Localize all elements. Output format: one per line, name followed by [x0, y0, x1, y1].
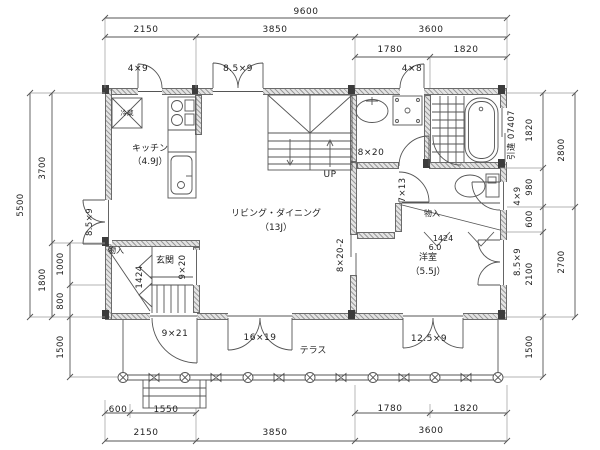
door-arc — [433, 137, 461, 165]
dim-bottom-2150: 2150 — [121, 428, 171, 438]
door-arc — [399, 136, 429, 166]
dim-top-3600: 3600 — [406, 25, 456, 35]
dim-bottom-1820: 1820 — [444, 404, 488, 414]
dim-right-2100: 2100 — [525, 252, 537, 296]
label-toilet-door: 7×13 — [398, 168, 410, 212]
dim-left-1800: 1800 — [38, 258, 50, 302]
dim-bottom-1550: 1550 — [141, 405, 191, 415]
room-bedroom-name: 洋室 — [398, 250, 458, 263]
room-entrance-name: 玄関 — [137, 253, 193, 266]
stairs-down-arrow-icon — [287, 139, 293, 165]
room-living-name: リビング・ダイニング — [213, 206, 339, 219]
label-right-door: 4×9 — [513, 174, 525, 218]
dim-right-2700: 2700 — [557, 240, 569, 284]
stairs-up-label: UP — [318, 170, 342, 180]
label-closet-front: 1424 — [420, 234, 466, 243]
label-top-kitchen-door: 4×9 — [118, 64, 158, 74]
stove-burner-icon — [172, 101, 183, 112]
room-bedroom-size: （5.5J） — [393, 264, 463, 277]
dim-bottom-600: 600 — [104, 405, 132, 415]
label-entrance-hall-door: 9×20 — [178, 245, 190, 289]
room-kitchen-name: キッチン — [112, 141, 188, 154]
door-arc — [152, 318, 197, 363]
dim-right-600: 600 — [525, 197, 537, 241]
stairs — [268, 95, 352, 170]
room-terrace-name: テラス — [283, 343, 343, 356]
dim-bottom-1780: 1780 — [368, 404, 412, 414]
stove-burner-icon — [172, 115, 183, 126]
room-kitchen-size: （4.9J） — [112, 154, 188, 167]
stairs-up-arrow-icon — [327, 140, 333, 167]
dim-left-1500: 1500 — [56, 325, 68, 369]
dim-top-2150: 2150 — [121, 25, 171, 35]
dim-left-800: 800 — [56, 279, 68, 323]
dim-right-2800: 2800 — [557, 128, 569, 172]
washing-machine — [393, 96, 422, 125]
dim-right-1500: 1500 — [525, 325, 537, 369]
label-entrance-door: 9×21 — [147, 329, 203, 339]
label-right-sliding: 引違 07407 — [505, 100, 517, 170]
label-right-double-door: 8.5×9 — [513, 240, 525, 284]
label-top-utility-door: 4×8 — [392, 64, 432, 74]
label-bedroom-terrace-door: 12.5×9 — [398, 334, 460, 344]
closet-bedroom-label: 物入 — [412, 208, 452, 219]
floor-plan: 9600 2150 3850 3600 1780 1820 4×9 8.5×9 … — [0, 0, 600, 450]
dim-top-overall: 9600 — [278, 7, 334, 17]
toilet-bowl — [455, 175, 485, 197]
label-top-double-door: 8.5×9 — [213, 64, 263, 74]
dim-top-3850: 3850 — [250, 25, 300, 35]
dim-bottom-3850: 3850 — [250, 428, 300, 438]
dim-left-3700: 3700 — [38, 146, 50, 190]
label-living-hall-sliding: 8×20-2 — [336, 227, 348, 283]
bath-tile-grid — [432, 96, 464, 162]
dim-bottom-3600: 3600 — [406, 426, 456, 436]
dim-left-5500: 5500 — [16, 183, 28, 227]
dim-top-1780: 1780 — [368, 45, 412, 55]
fridge-label: 冷蔵 — [115, 107, 139, 117]
dim-right-1820: 1820 — [525, 108, 537, 152]
dim-top-1820: 1820 — [444, 45, 488, 55]
closet-entrance-label: 物入 — [96, 245, 136, 256]
label-stair-hall-window: 8×20 — [346, 148, 396, 158]
label-left-double-door: 8.5×9 — [85, 200, 97, 244]
porch-steps — [143, 380, 206, 408]
room-living-size: （13J） — [213, 220, 339, 233]
door-arc — [478, 240, 500, 285]
label-living-terrace-door: 16×19 — [230, 333, 290, 343]
